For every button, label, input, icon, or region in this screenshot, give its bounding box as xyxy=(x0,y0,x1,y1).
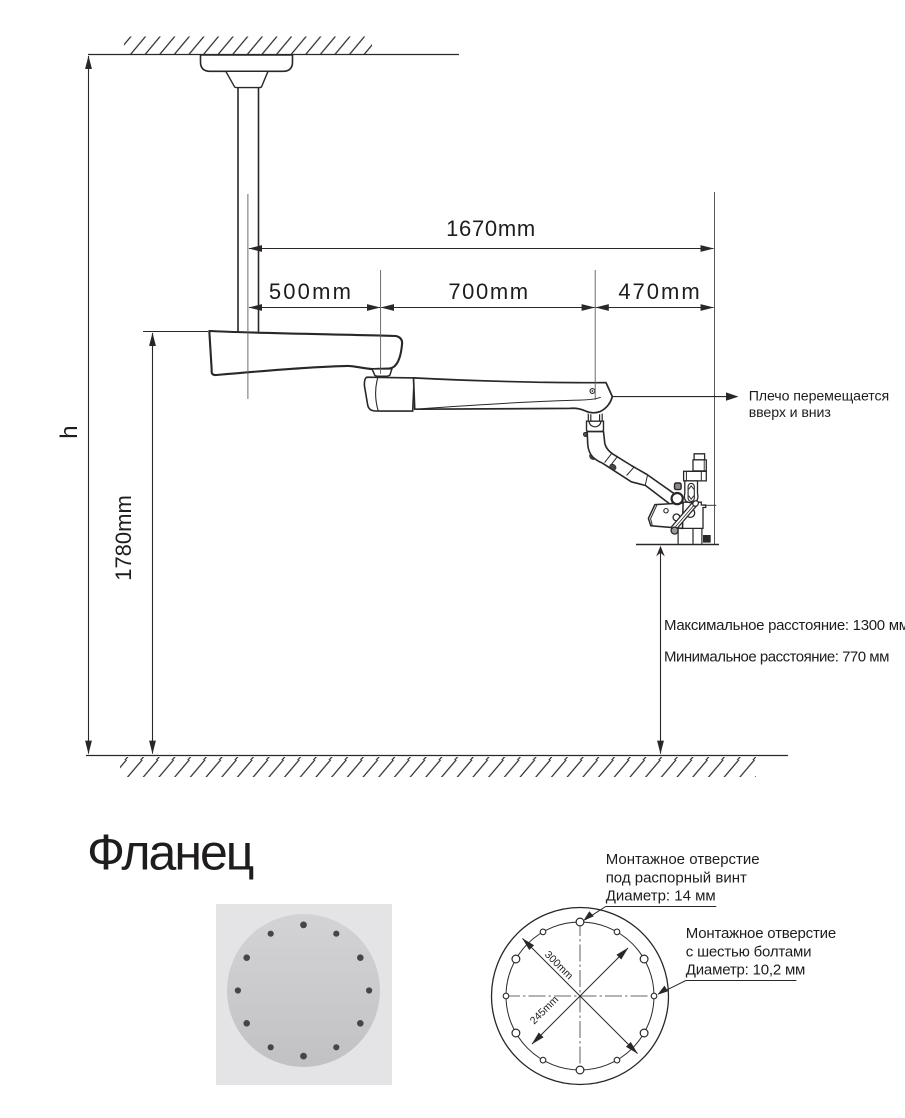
svg-text:под распорный винт: под распорный винт xyxy=(606,869,747,886)
svg-text:вверх и вниз: вверх и вниз xyxy=(749,405,831,421)
svg-text:Монтажное отверстие: Монтажное отверстие xyxy=(606,851,760,868)
svg-text:Диаметр: 10,2 мм: Диаметр: 10,2 мм xyxy=(686,962,805,979)
svg-text:700mm: 700mm xyxy=(448,279,529,304)
svg-text:1670mm: 1670mm xyxy=(446,216,536,241)
svg-text:Диаметр: 14 мм: Диаметр: 14 мм xyxy=(606,888,716,905)
svg-text:500mm: 500mm xyxy=(269,279,353,304)
svg-text:470mm: 470mm xyxy=(618,279,701,304)
svg-text:1780mm: 1780mm xyxy=(111,495,136,581)
svg-text:Монтажное отверстие: Монтажное отверстие xyxy=(686,925,836,942)
svg-text:Минимальное расстояние: 770 мм: Минимальное расстояние: 770 мм xyxy=(664,649,889,666)
svg-text:Фланец: Фланец xyxy=(87,825,254,881)
svg-text:Максимальное расстояние: 1300: Максимальное расстояние: 1300 мм xyxy=(664,617,905,634)
svg-text:с шестью болтами: с шестью болтами xyxy=(686,943,812,960)
svg-text:Плечо перемещается: Плечо перемещается xyxy=(749,389,889,405)
svg-text:h: h xyxy=(56,425,83,438)
